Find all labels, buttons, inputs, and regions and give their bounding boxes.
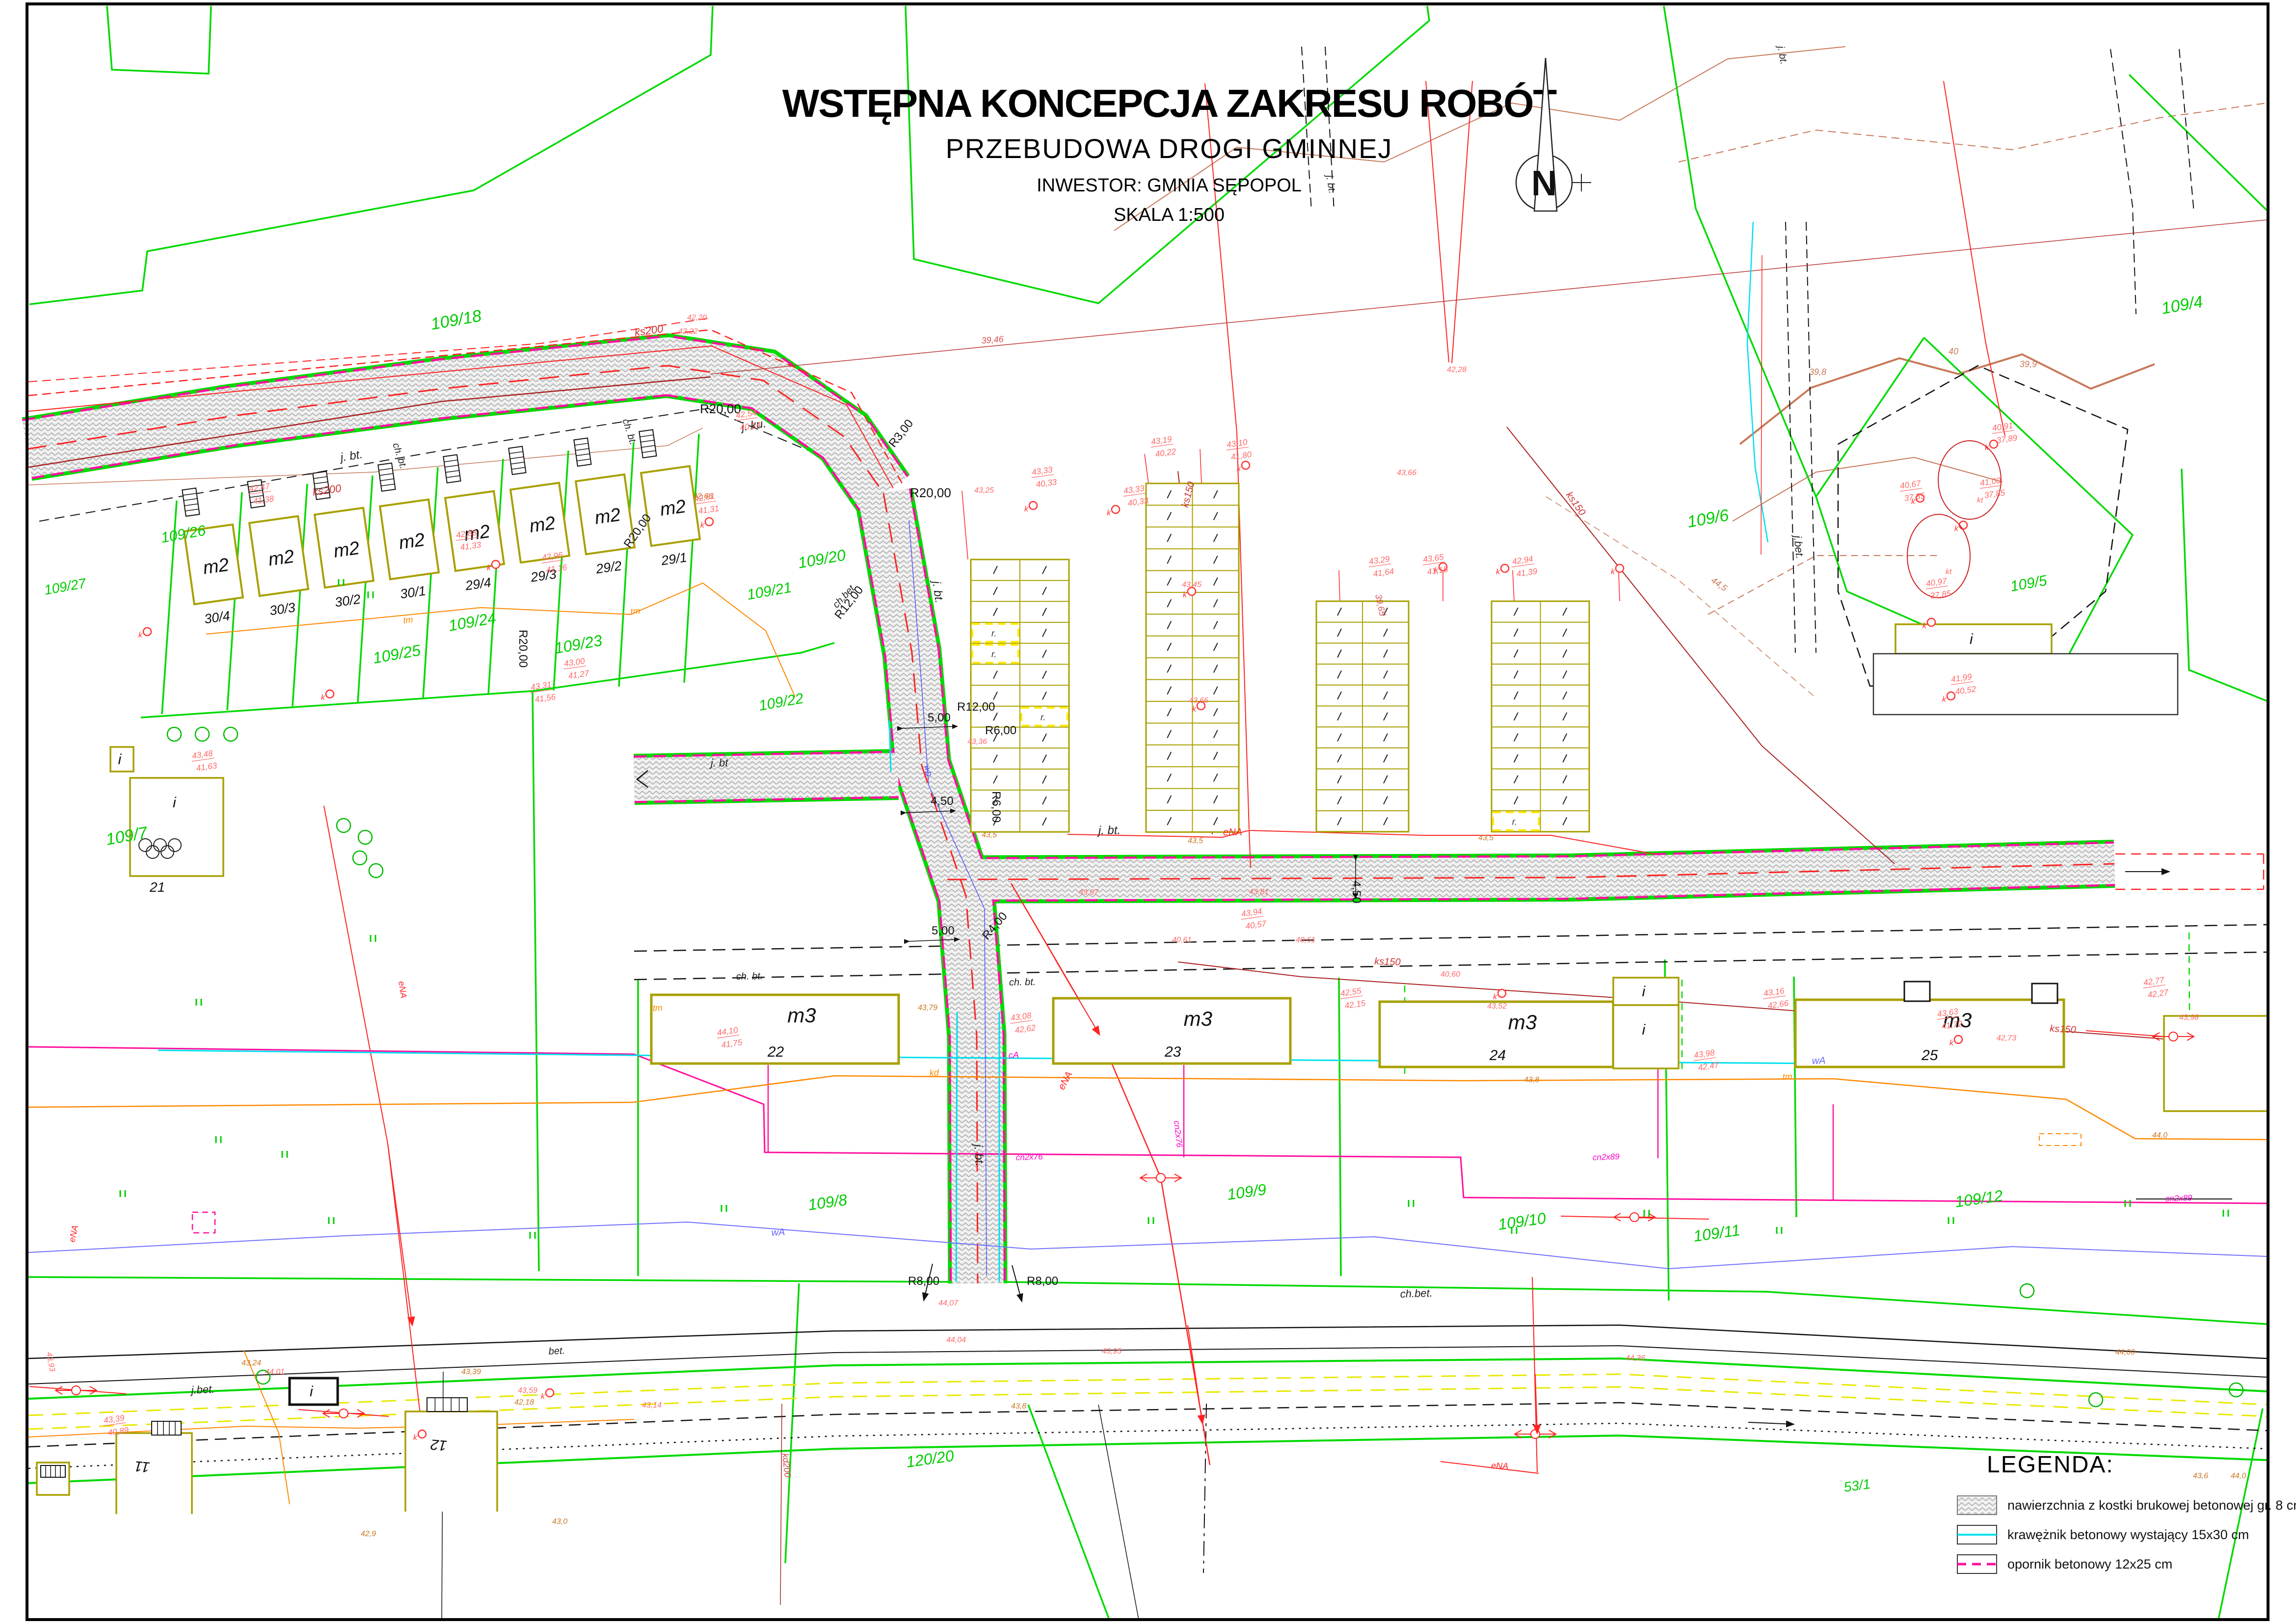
power-pole-symbol [1515, 1430, 1556, 1438]
map-label: wD [923, 765, 932, 777]
map-label: R6,00 [989, 791, 1003, 823]
stairs-symbol [427, 1398, 467, 1411]
tank-label: kt [1977, 496, 1983, 505]
manhole-k-label: k [1611, 568, 1615, 576]
map-label: 42,73 [1997, 1034, 2016, 1042]
map-label: j.bet. [189, 1383, 215, 1397]
manhole-k-label: k [1493, 993, 1497, 1001]
manhole-k-label: k [541, 1392, 545, 1401]
map-label: cn2x89 [2165, 1193, 2192, 1203]
tank-label: kt [1946, 568, 1952, 576]
legend-item-curb: krawężnik betonowy wystający 15x30 cm [2007, 1527, 2249, 1542]
north-letter: N [1531, 164, 1557, 203]
building-type-label: m3 [1508, 1011, 1537, 1034]
building-m3: m323 [1053, 998, 1290, 1064]
map-label: eNA [1223, 827, 1242, 838]
building-number-label: 22 [767, 1044, 784, 1060]
drawing-scale: SKALA 1:500 [1114, 205, 1225, 225]
map-label: 43,14 [642, 1401, 662, 1410]
map-label: 43,8 [1524, 1076, 1539, 1084]
building: i [1613, 1005, 1679, 1068]
power-pole-symbol [323, 1409, 364, 1418]
manhole-k-label: k [1237, 465, 1241, 473]
building-m3: m322 [651, 995, 899, 1064]
map-label: eNA [1491, 1461, 1509, 1471]
garage-block [1316, 601, 1409, 832]
map-label: tm [403, 614, 414, 625]
house-type-label: m2 [398, 530, 426, 554]
map-label: 43,66 [1189, 696, 1208, 705]
manhole-k-label: k [1922, 622, 1927, 630]
map-label: R6,00 [985, 724, 1016, 737]
legend-heading: LEGENDA: [1987, 1452, 2114, 1478]
map-label: bet. [548, 1345, 565, 1357]
map-label: ks150 [2050, 1023, 2076, 1036]
map-label: kd [929, 1067, 939, 1078]
manhole-k-label: k [1942, 695, 1947, 704]
map-label: R20,00 [516, 630, 530, 667]
map-label: 44,07 [938, 1299, 959, 1307]
map-label: 43,5 [1188, 837, 1203, 845]
map-label: j. bt. [1097, 824, 1121, 837]
map-label: 43,98 [2179, 1013, 2199, 1022]
drawing-sheet: r.r.r.r. m230/4m230/3m230/2m230/1m229/4m… [0, 0, 2296, 1624]
paved-road-stub-road [634, 774, 898, 779]
power-pole-symbol [55, 1386, 97, 1395]
map-label: 43,36 [967, 738, 987, 746]
map-label: 42,9 [361, 1530, 376, 1538]
map-label: 5,00 [932, 924, 955, 937]
map-label: 43,67 [1079, 888, 1099, 897]
map-label: ch.bet. [1400, 1287, 1433, 1300]
map-label: 39,9 [2020, 359, 2037, 369]
legend-item-paver: nawierzchnia z kostki brukowej betonowej… [2007, 1498, 2296, 1513]
house-type-label: m2 [267, 546, 295, 570]
map-label: R20,00 [910, 485, 951, 500]
map-label: 43,45 [1182, 581, 1201, 589]
manhole-k-label: k [1954, 525, 1959, 533]
map-label: wA [771, 1227, 785, 1238]
map-label: 43,66 [1397, 469, 1416, 477]
garage-reserve-label: r. [991, 649, 996, 659]
map-label: ks150 [1374, 956, 1401, 968]
map-label: 4,50 [1350, 880, 1363, 904]
map-label: 43,95 [1102, 1347, 1121, 1356]
building [2164, 1016, 2268, 1111]
manhole-k-label: k [487, 564, 491, 572]
power-pole-symbol [2153, 1032, 2194, 1041]
building-number-label: 24 [1489, 1047, 1506, 1064]
garage-block: r.r.r. [971, 559, 1069, 832]
map-label: 39,46 [981, 334, 1004, 346]
manhole-k-label: k [700, 521, 705, 530]
map-label: 44,01 [265, 1368, 285, 1376]
house-type-label: m2 [659, 496, 687, 520]
map-label: 43,79 [918, 1004, 937, 1012]
building-label: 11 [134, 1458, 151, 1475]
roof-box [1904, 982, 1930, 1001]
map-label: 42,18 [514, 1398, 534, 1407]
map-label: 42,28 [1447, 366, 1467, 374]
map-label: j. bt. [971, 1143, 986, 1167]
map-label: cA [1008, 1050, 1019, 1060]
map-label: 43,52 [1487, 1002, 1507, 1011]
manhole-k-label: k [138, 631, 143, 639]
map-label: 39,8 [1809, 367, 1826, 377]
stairs-symbol [152, 1421, 181, 1435]
building [1873, 654, 2178, 715]
house-type-label: m2 [528, 513, 557, 537]
map-label: j.bet. [1791, 533, 1806, 559]
map-label: 43,24 [241, 1359, 261, 1367]
map-label: 42,22 [678, 327, 698, 336]
house-type-label: m2 [202, 555, 230, 579]
roof-box [2032, 984, 2057, 1003]
map-label: ch. bt. [736, 971, 763, 982]
map-label: 43,39 [461, 1368, 481, 1376]
building-m3: m324 [1380, 1002, 1613, 1067]
manhole-k-label: k [413, 1434, 418, 1442]
manhole-k-label: k [1496, 568, 1500, 576]
map-label: 44,0 [2152, 1131, 2167, 1140]
site-plan-canvas: r.r.r.r. m230/4m230/3m230/2m230/1m229/4m… [0, 0, 2296, 1624]
legend-item-edge: opornik betonowy 12x25 cm [2007, 1557, 2172, 1571]
map-label: cn2x89 [1592, 1152, 1620, 1162]
map-label: 40,60 [1441, 970, 1460, 979]
map-label: tm [1782, 1071, 1792, 1082]
map-label: R20,00 [700, 401, 741, 416]
building: i [1896, 624, 2052, 654]
legend-swatch-paver-icon [1957, 1496, 1997, 1515]
map-label: 43,59 [518, 1386, 537, 1395]
garage-block: r. [1492, 601, 1589, 832]
map-label: wA [1812, 1055, 1826, 1066]
power-pole-symbol [1140, 1173, 1181, 1182]
map-label: 44,04 [946, 1336, 966, 1344]
map-label: 40,61 [1296, 936, 1315, 944]
map-label: tm [630, 606, 641, 616]
building: 12 [405, 1411, 497, 1512]
building: i [290, 1378, 338, 1405]
house-type-label: m2 [332, 538, 361, 562]
map-label: 43,25 [974, 486, 994, 495]
garage-reserve-label: r. [1512, 817, 1517, 826]
building: i [1613, 978, 1679, 1005]
map-label: cn2x76 [1015, 1152, 1043, 1162]
manhole-k-label: k [1949, 1039, 1954, 1047]
map-label: 40 [1949, 346, 1958, 356]
map-label: 4,50 [931, 795, 954, 808]
drawing-subtitle: PRZEBUDOWA DROGI GMINNEJ [946, 133, 1393, 164]
house-type-label: m2 [593, 505, 622, 529]
building-number-label: 21 [149, 879, 165, 895]
map-label: 44,0 [2231, 1472, 2246, 1480]
manhole-k-label: k [1183, 591, 1187, 599]
map-label: 43,5 [1478, 834, 1494, 842]
map-label: R8,00 [908, 1275, 939, 1288]
building: i [110, 747, 133, 772]
map-label: R8,00 [1027, 1275, 1058, 1288]
map-label: 43,6 [2193, 1472, 2208, 1480]
building: 11 [116, 1433, 192, 1514]
map-label: 43,0 [552, 1518, 567, 1526]
garage-block [1146, 483, 1239, 832]
map-label: 5,00 [928, 711, 951, 724]
building-label: 12 [430, 1436, 448, 1454]
drawing-investor: INWESTOR: GMNIA SĘPOPOL [1037, 175, 1302, 196]
garage-reserve-label: r. [1041, 712, 1045, 722]
manhole-k-label: k [1024, 505, 1029, 513]
map-label: R12,00 [957, 700, 995, 714]
building-number-label: 23 [1164, 1044, 1181, 1060]
drawing-title: WSTĘPNA KONCEPCJA ZAKRESU ROBÓT [782, 81, 1557, 125]
building-type-label: m3 [787, 1004, 816, 1027]
map-label: 43,5 [982, 831, 997, 839]
manhole-k-label: k [1192, 705, 1197, 714]
garage-reserve-label: r. [991, 628, 996, 638]
map-label: tm [652, 1003, 663, 1013]
map-label: 42,20 [687, 314, 707, 322]
map-label: 43,8 [1011, 1402, 1026, 1411]
building-type-label: m3 [1184, 1007, 1212, 1030]
building-number-label: 25 [1921, 1047, 1938, 1064]
map-label: ch. bt. [1009, 977, 1036, 988]
manhole-k-label: k [1107, 509, 1111, 517]
map-label: 44,36 [1626, 1354, 1645, 1362]
manhole-k-label: k [321, 693, 325, 702]
map-label: 43,81 [1249, 888, 1269, 896]
stairs-symbol [41, 1465, 65, 1477]
map-label: 40,61 [1172, 936, 1192, 944]
map-label: 44,00 [2115, 1348, 2135, 1357]
map-label: j. bt [709, 756, 729, 769]
utility-line [956, 1012, 957, 1282]
